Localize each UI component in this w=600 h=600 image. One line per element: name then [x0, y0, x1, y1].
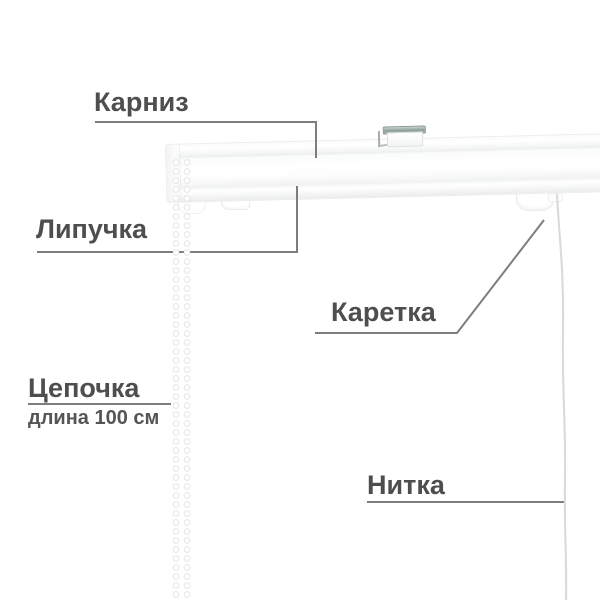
- label-cornice: Карниз: [94, 88, 189, 118]
- bead-chain-strand-left: [172, 158, 180, 600]
- thread-string: [557, 194, 566, 600]
- cornice-pointer-line: [95, 122, 316, 158]
- bead-chain-strand-right: [183, 158, 191, 600]
- label-thread: Нитка: [367, 471, 445, 501]
- label-chain-length-note: длина 100 см: [28, 407, 159, 429]
- product-diagram: Карниз Липучка Каретка Цепочка длина 100…: [0, 0, 600, 600]
- label-chain: Цепочка: [28, 374, 139, 404]
- label-carriage: Каретка: [331, 298, 436, 328]
- annotation-lines: [0, 0, 600, 600]
- label-velcro: Липучка: [36, 215, 147, 245]
